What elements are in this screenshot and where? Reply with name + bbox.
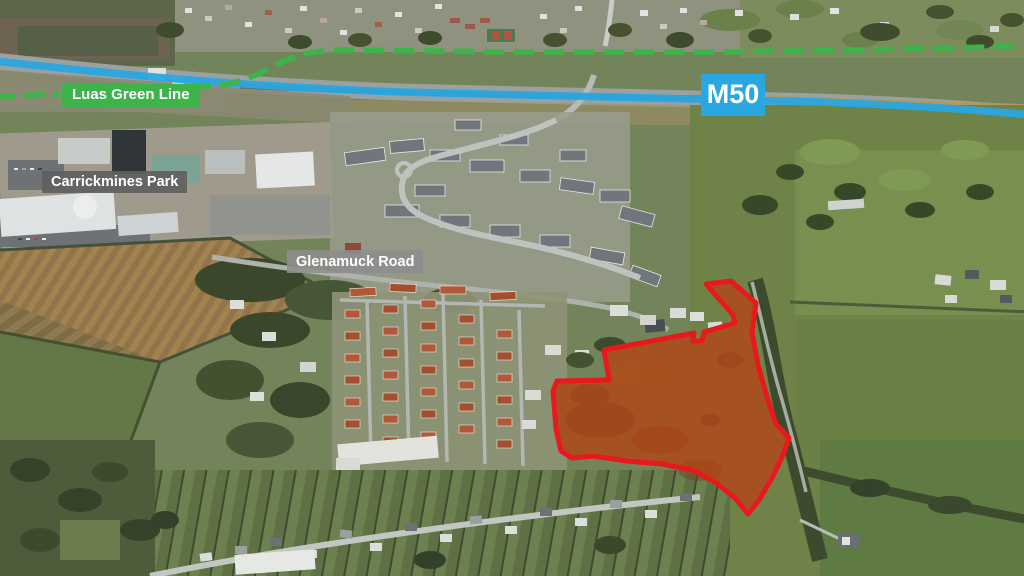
carrickmines-park-label: Carrickmines Park [42, 171, 187, 193]
luas-green-line-label: Luas Green Line [62, 84, 200, 108]
warehouse [0, 191, 116, 237]
m50-label: M50 [701, 74, 765, 116]
office-block [58, 138, 110, 164]
aerial-site-map: Luas Green Line M50 Carrickmines Park Gl… [0, 0, 1024, 576]
silo [73, 195, 97, 219]
warehouse [255, 152, 315, 189]
glenamuck-road-label: Glenamuck Road [287, 250, 423, 273]
dark-office-tower [112, 130, 146, 174]
